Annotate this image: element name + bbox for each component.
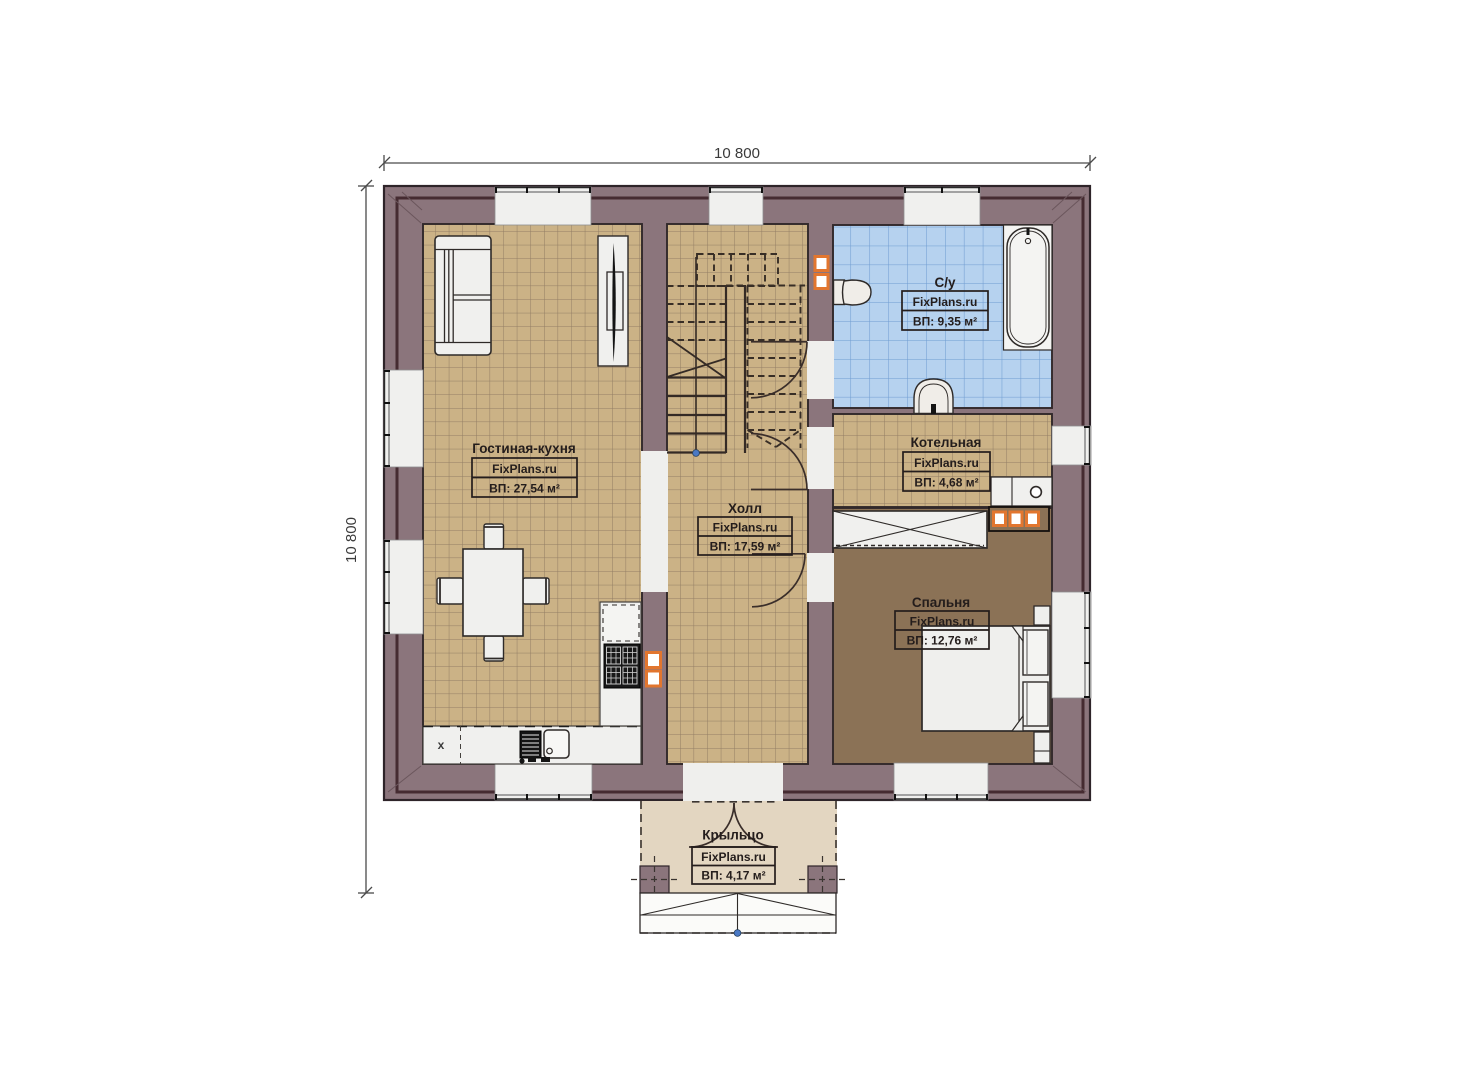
svg-text:Холл: Холл [728,501,762,516]
svg-text:ВП: 27,54 м²: ВП: 27,54 м² [489,482,560,496]
svg-text:Гостиная-кухня: Гостиная-кухня [472,441,575,456]
svg-text:ВП: 4,68 м²: ВП: 4,68 м² [914,476,978,490]
svg-text:Спальня: Спальня [912,595,970,610]
svg-text:FixPlans.ru: FixPlans.ru [913,295,978,309]
svg-text:ВП: 9,35 м²: ВП: 9,35 м² [913,315,977,329]
svg-text:ВП: 4,17 м²: ВП: 4,17 м² [701,869,765,883]
svg-text:x: x [438,738,445,752]
svg-text:Котельная: Котельная [911,435,982,450]
svg-text:FixPlans.ru: FixPlans.ru [701,850,766,864]
svg-text:ВП: 12,76 м²: ВП: 12,76 м² [907,634,978,648]
svg-text:Крыльцо: Крыльцо [702,828,763,843]
svg-text:С/у: С/у [934,275,956,290]
svg-text:FixPlans.ru: FixPlans.ru [914,456,979,470]
svg-text:FixPlans.ru: FixPlans.ru [713,521,778,535]
svg-text:FixPlans.ru: FixPlans.ru [492,462,557,476]
svg-text:FixPlans.ru: FixPlans.ru [910,615,975,629]
svg-text:10 800: 10 800 [343,517,360,563]
svg-text:ВП: 17,59 м²: ВП: 17,59 м² [710,540,781,554]
svg-text:10 800: 10 800 [714,145,760,162]
